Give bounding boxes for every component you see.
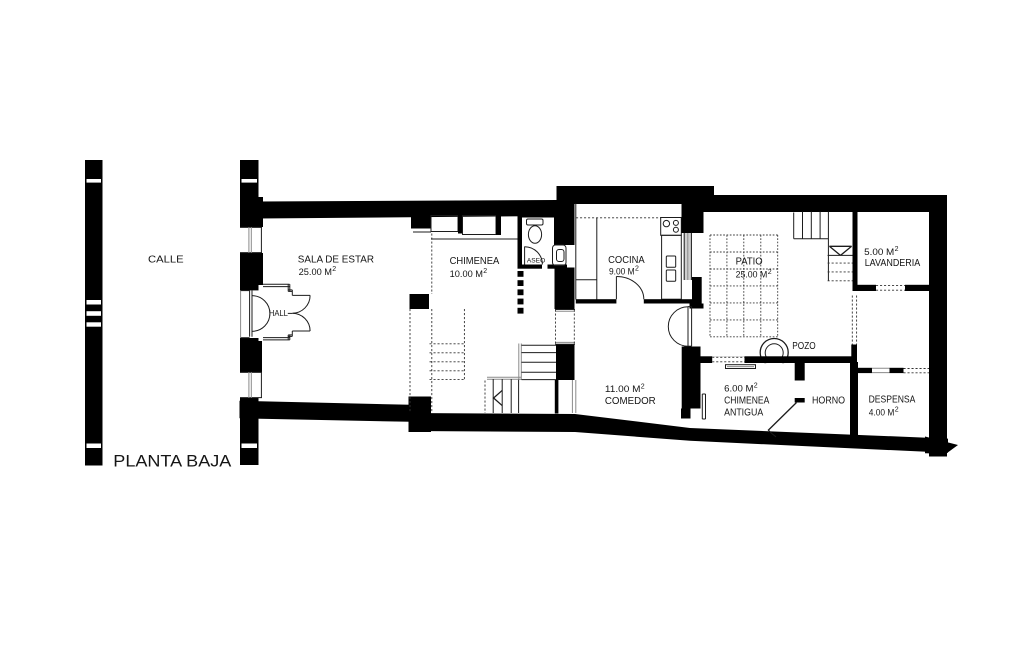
svg-text:SALA DE ESTAR: SALA DE ESTAR (298, 255, 374, 266)
svg-text:2: 2 (332, 266, 336, 273)
svg-text:ASEO: ASEO (527, 258, 545, 265)
svg-text:2: 2 (483, 268, 487, 275)
svg-text:2: 2 (895, 407, 899, 414)
svg-text:PATIO: PATIO (736, 256, 763, 267)
svg-text:2: 2 (641, 383, 645, 390)
svg-text:PLANTA BAJA: PLANTA BAJA (113, 452, 231, 470)
svg-text:2: 2 (635, 265, 639, 272)
svg-text:DESPENSA: DESPENSA (869, 395, 916, 406)
svg-text:LAVANDERIA: LAVANDERIA (865, 258, 921, 269)
svg-text:4.00 M: 4.00 M (869, 408, 895, 419)
svg-text:HORNO: HORNO (812, 395, 845, 406)
svg-text:6.00 M: 6.00 M (724, 384, 753, 395)
svg-text:POZO: POZO (792, 341, 816, 352)
svg-text:CHIMENEA: CHIMENEA (450, 256, 500, 267)
svg-text:2: 2 (895, 246, 899, 253)
svg-text:ANTIGUA: ANTIGUA (724, 408, 763, 419)
svg-text:COMEDOR: COMEDOR (605, 396, 656, 407)
svg-text:CHIMENEA: CHIMENEA (724, 395, 770, 406)
svg-text:25.00 M: 25.00 M (299, 267, 332, 278)
svg-text:25.00 M: 25.00 M (736, 270, 768, 281)
svg-text:2: 2 (768, 269, 772, 276)
svg-text:CALLE: CALLE (148, 255, 184, 266)
svg-text:COCINA: COCINA (608, 255, 645, 266)
svg-text:HALL: HALL (269, 309, 289, 318)
svg-text:2: 2 (754, 383, 758, 390)
svg-text:9.00 M: 9.00 M (609, 266, 635, 277)
svg-text:10.00 M: 10.00 M (450, 269, 483, 280)
svg-text:5.00 M: 5.00 M (864, 247, 894, 258)
svg-text:11.00 M: 11.00 M (605, 384, 641, 395)
